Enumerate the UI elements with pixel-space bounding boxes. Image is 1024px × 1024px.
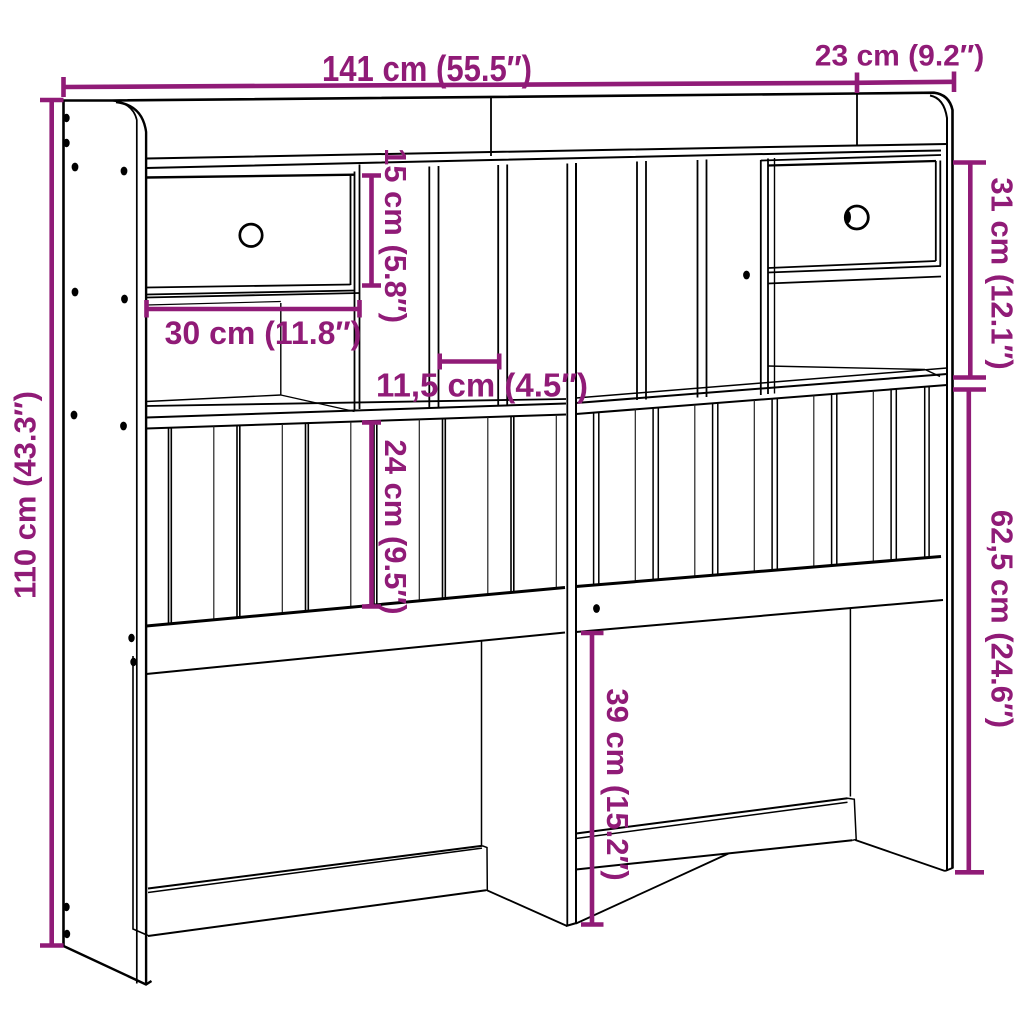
svg-text:30 cm (11.8″): 30 cm (11.8″) <box>165 315 362 351</box>
svg-text:11,5 cm (4.5″): 11,5 cm (4.5″) <box>376 367 588 404</box>
svg-text:141 cm (55.5″): 141 cm (55.5″) <box>322 48 532 89</box>
svg-text:110 cm (43.3″): 110 cm (43.3″) <box>8 391 43 599</box>
svg-text:23 cm (9.2″): 23 cm (9.2″) <box>815 40 984 73</box>
svg-text:15 cm (5.8″): 15 cm (5.8″) <box>378 148 413 323</box>
svg-text:39 cm (15.2″): 39 cm (15.2″) <box>600 688 635 880</box>
svg-text:31 cm (12.1″): 31 cm (12.1″) <box>985 177 1020 369</box>
svg-text:62,5 cm (24.6″): 62,5 cm (24.6″) <box>985 510 1020 728</box>
svg-text:24 cm (9.5″): 24 cm (9.5″) <box>378 439 413 614</box>
